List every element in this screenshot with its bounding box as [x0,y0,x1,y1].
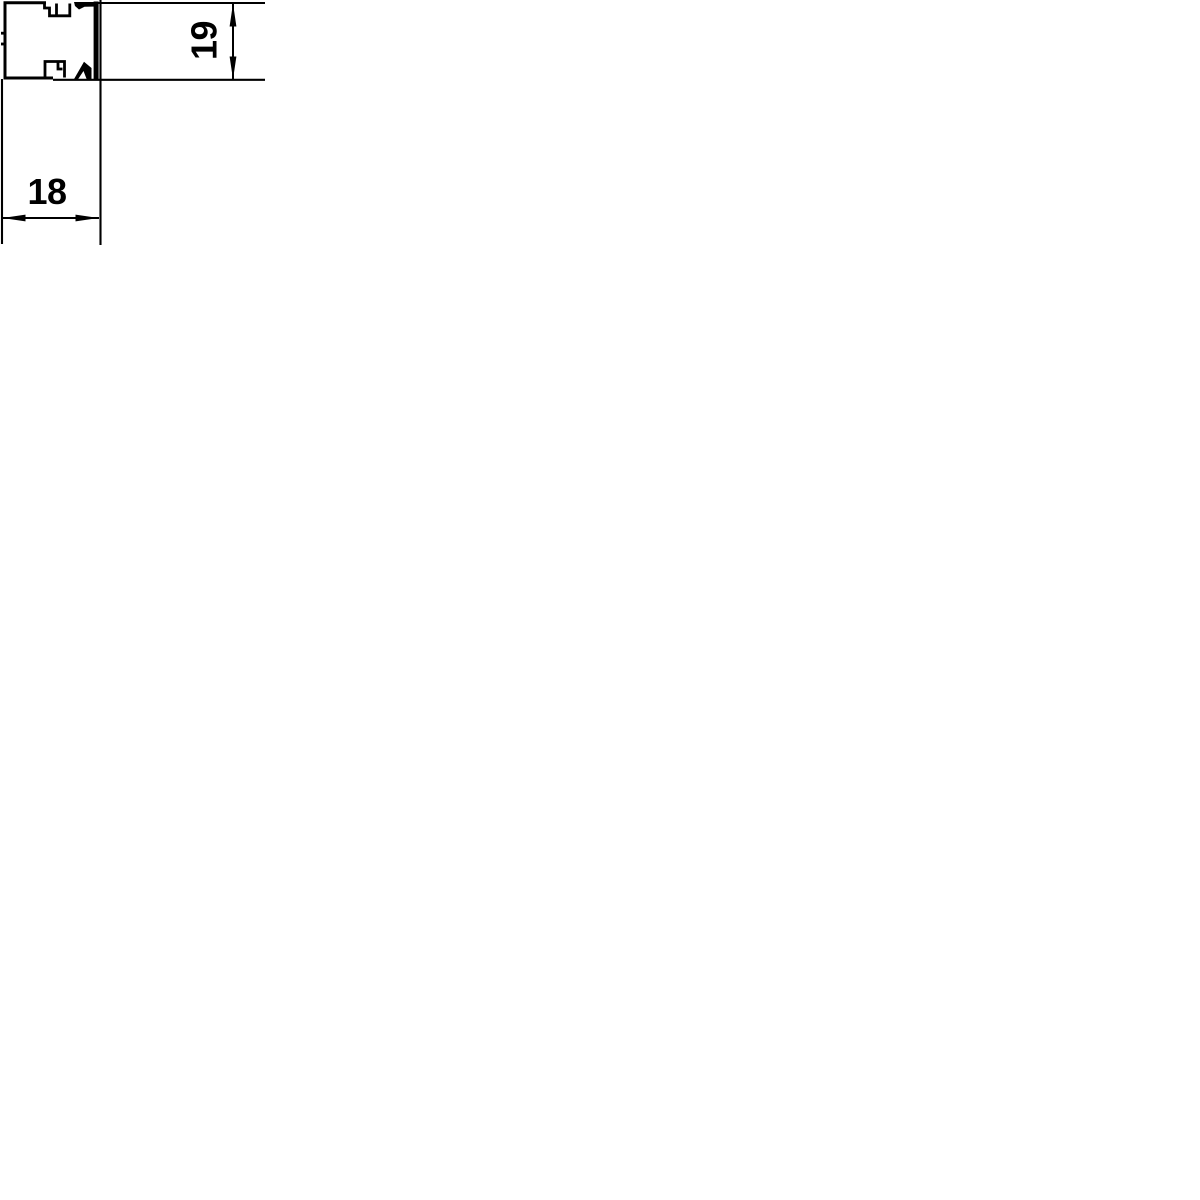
profile-body [1,2,70,79]
body-top-snap-hook [45,2,70,16]
body-bottom-snap-hook [45,62,65,79]
profile-cover [74,2,99,81]
width-dimension: 18 [2,171,99,221]
height-arrow-top [230,4,237,27]
body-wall-rib-1 [1,32,4,35]
width-arrow-left [3,215,26,222]
width-arrow-right [76,215,99,222]
height-dimension: 19 [184,4,237,80]
body-wall-rib-2 [1,43,4,46]
height-dimension-label: 19 [184,21,225,60]
trunking-cross-section-drawing: 18 19 [0,0,1200,1200]
drawing-canvas: 18 19 [0,0,1200,1200]
width-dimension-label: 18 [27,171,66,212]
height-arrow-bottom [230,57,237,80]
cover-wall [94,2,99,80]
